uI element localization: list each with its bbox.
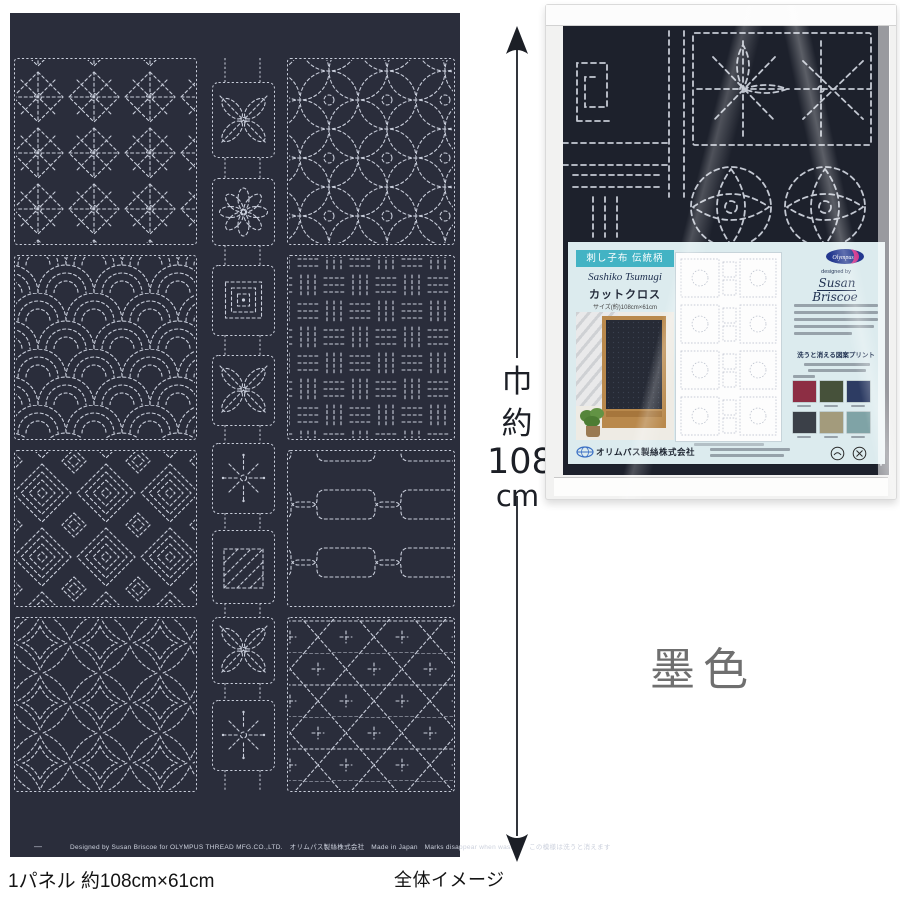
- pattern-block-diamonds: [16, 452, 195, 605]
- measure-value: 108: [487, 444, 547, 480]
- overall-image-caption: 全体イメージ: [394, 866, 505, 892]
- pattern-block-cloud-scroll: [289, 452, 453, 605]
- pattern-block-star-asanoha: [16, 60, 195, 243]
- sashiko-fabric-panel: — Designed by Susan Briscoe for OLYMPUS …: [10, 13, 460, 857]
- selvage-text: Designed by Susan Briscoe for OLYMPUS TH…: [70, 841, 430, 851]
- pattern-block-fundo: [16, 619, 195, 790]
- motif-column: [213, 58, 275, 792]
- pattern-block-hexagons: [289, 619, 453, 790]
- panel-size-caption: 1パネル 約108cm×61cm: [8, 866, 214, 893]
- pattern-block-basketweave: [289, 257, 453, 438]
- bag-crease-highlight: [546, 5, 896, 499]
- measure-width-char: 巾: [487, 366, 547, 398]
- sashiko-pattern-art: [10, 13, 460, 857]
- product-listing-image: — Designed by Susan Briscoe for OLYMPUS …: [0, 0, 900, 900]
- measure-approx-char: 約: [487, 408, 547, 440]
- product-package: 刺し子布 伝統柄 Sashiko Tsumugi カットクロス サイズ(約)10…: [545, 4, 897, 500]
- measure-unit: cm: [487, 482, 547, 510]
- pattern-block-clamshell: [16, 257, 195, 438]
- pattern-block-shippo-circles: [289, 60, 453, 243]
- color-name-label: 墨色: [650, 633, 756, 698]
- arrow-down-head: [506, 834, 528, 862]
- selvage-dash: —: [34, 842, 42, 851]
